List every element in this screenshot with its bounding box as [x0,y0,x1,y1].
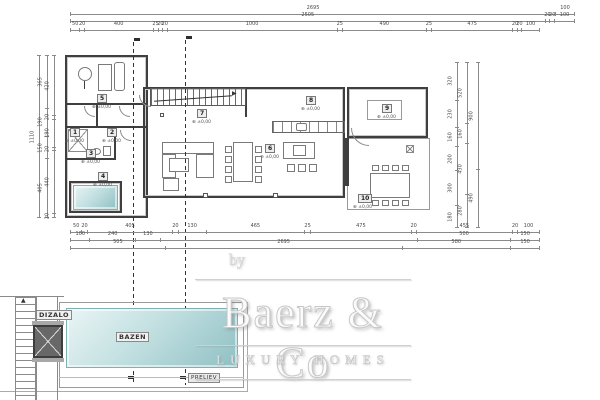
outdoor-chair [402,165,409,171]
elevation-mark: ⊕ ±0,00 [65,139,84,144]
garden-stair-arrow-icon: ▲ [21,298,26,304]
lift-rail [32,358,64,362]
terrace-left-wall [345,138,349,186]
room-label-6: 6 [265,144,275,153]
dimension-chain: 5052695580150 [70,246,540,250]
dimension-chain: 5020400252020100025490254752020100 [70,28,540,32]
post-marker [273,193,278,198]
dimension-chain: 502040520130465254752045520100 [70,230,540,234]
elevation-mark: ⊕ ±0,00 [377,115,396,120]
outdoor-chair [372,165,379,171]
room-label-7: 7 [197,109,207,118]
column-marker [406,145,414,153]
gym-equipment [78,67,92,81]
outdoor-chair [372,200,379,206]
post-marker [160,113,164,117]
coffee-table [169,158,189,172]
dimension-chain: 25052020100 [70,19,575,23]
dining-chair [255,166,262,173]
watermark-by: by [197,252,277,270]
stair-arrow-icon: ▶ [232,91,237,97]
section-flag-icon [186,36,192,39]
side-table [163,178,179,191]
dining-chair [225,176,232,183]
section-flag-icon [134,38,140,41]
dining-chair [225,156,232,163]
dimension-chain: 520160430280 [465,62,469,228]
kitchen-sink [296,123,307,131]
elevation-mark: ⊕ ±0,00 [102,139,121,144]
room-label-5: 5 [97,94,107,103]
dining-chair [255,176,262,183]
toilet [103,146,111,156]
dimension-chain: 2695100 [70,12,575,16]
garden-line [0,391,248,392]
garden-line [247,302,248,392]
dining-chair [255,146,262,153]
elevation-mark: ⊕ ±0,00 [353,205,372,210]
watermark-rule [195,279,411,280]
pool-lift [33,325,63,358]
sofa [162,142,214,154]
bar-stool [309,164,317,172]
room-label-9: 9 [382,104,392,113]
room-label-3: 3 [86,149,96,158]
lift-label: DIZALO [36,310,72,320]
dimension-chain: 420201902044020 [52,55,56,218]
room-label-2: 2 [107,128,117,137]
room-label-4: 4 [98,172,108,181]
outdoor-chair [382,165,389,171]
room-label-8: 8 [306,96,316,105]
main-pool [66,308,238,368]
room-label-10: 10 [358,194,372,203]
stove-icon [293,145,306,156]
kitchen-counter [272,121,345,133]
dining-chair [225,166,232,173]
armchair [196,154,214,178]
elevation-mark: ⊕ ±0,00 [81,160,100,165]
elevation-mark: ⊕ ±0,00 [93,183,112,188]
bar-stool [287,164,295,172]
room-label-1: 1 [70,128,80,137]
pool-label: BAZEN [116,332,149,342]
outdoor-chair [402,200,409,206]
outdoor-chair [392,165,399,171]
outdoor-table [370,173,410,198]
outdoor-chair [392,200,399,206]
outdoor-chair [382,200,389,206]
dimension-chain: 900490 [476,62,480,228]
lounger [98,64,112,91]
post-marker [203,193,208,198]
bar-stool [298,164,306,172]
dimension-chain: 320230160200300180 [455,62,459,228]
dining-table [233,142,253,182]
dimension-chain: 100240130500150 [70,238,540,242]
dining-chair [225,146,232,153]
elevation-mark: ⊕ ±0,00 [92,105,111,110]
gym-equipment [84,81,85,89]
overflow-label: PRELJEV [188,373,220,383]
dining-chair [255,156,262,163]
floorplan-page: ▶ [0,0,600,400]
exercise-machine [114,62,125,91]
elevation-mark: ⊕ ±0,00 [260,155,279,160]
indoor-pool [73,185,118,210]
elevation-mark: ⊕ ±0,00 [301,107,320,112]
elevation-mark: ⊕ ±0,00 [192,120,211,125]
